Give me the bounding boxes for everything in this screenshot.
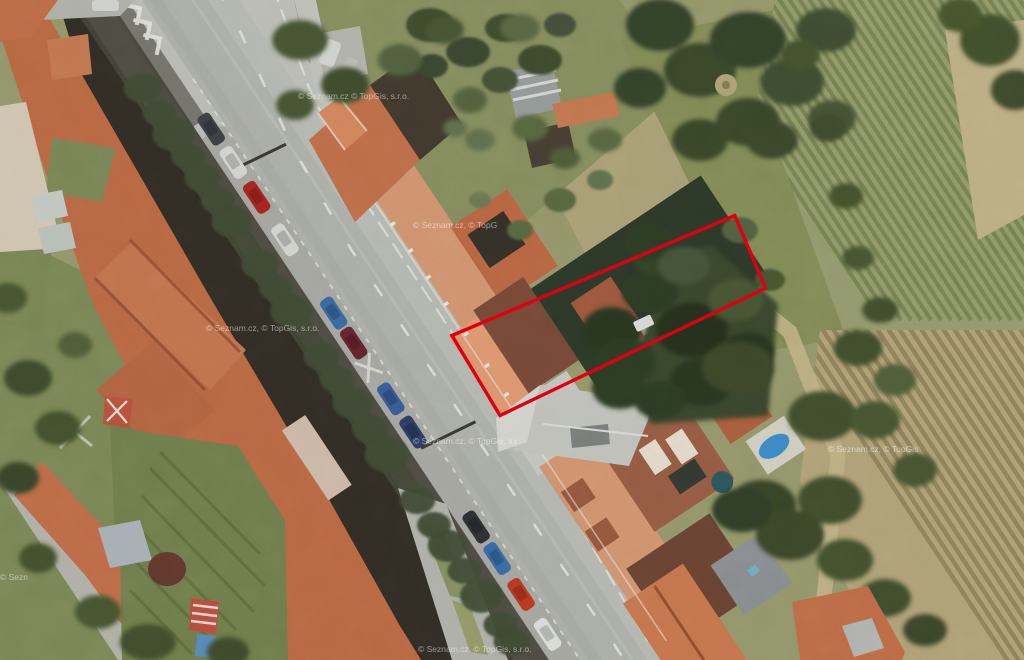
svg-text:© Seznam.cz, © TopGis, s.r.o.: © Seznam.cz, © TopGis, s.r.o. bbox=[418, 644, 531, 654]
svg-text:© Seznam.cz, © TopGis: © Seznam.cz, © TopGis bbox=[828, 444, 918, 454]
svg-text:© Seznam.cz © TopGis, s.r.o.: © Seznam.cz © TopGis, s.r.o. bbox=[298, 91, 409, 101]
svg-text:© Sezn: © Sezn bbox=[0, 572, 28, 582]
svg-text:© Seznam.cz, © TopGis, s.r: © Seznam.cz, © TopGis, s.r bbox=[413, 436, 518, 446]
svg-text:© Seznam.cz, © TopGis, s.r.o.: © Seznam.cz, © TopGis, s.r.o. bbox=[206, 323, 319, 333]
svg-text:© Seznam.cz, © TopG: © Seznam.cz, © TopG bbox=[413, 220, 497, 230]
